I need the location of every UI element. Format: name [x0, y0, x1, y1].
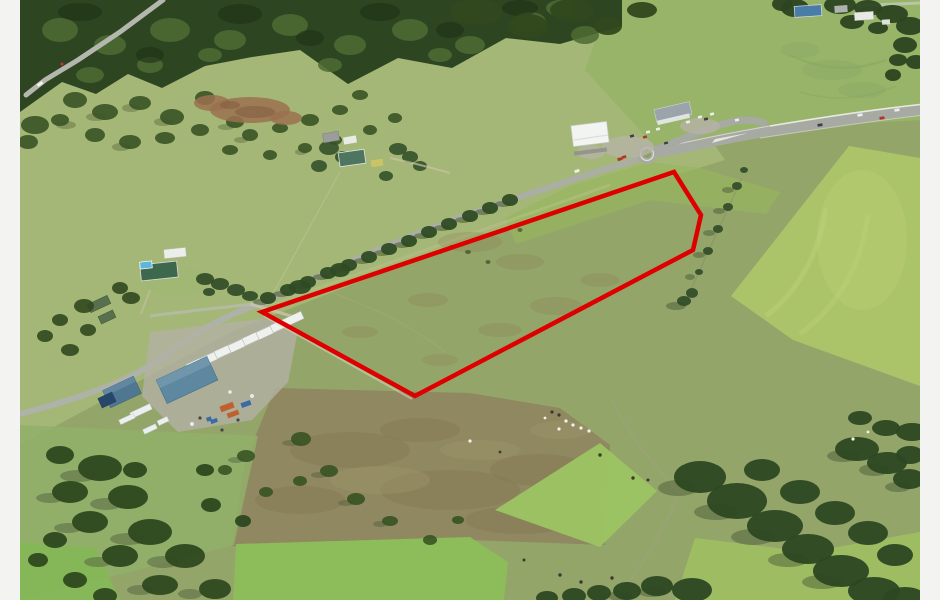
screenshot-frame	[0, 0, 940, 600]
vehicle-taillight	[61, 63, 64, 66]
house2-pool	[140, 261, 153, 269]
topright-house-blue-roof	[794, 5, 822, 18]
rest-area-shed-roof	[571, 121, 609, 146]
topright-shed-white-small	[882, 19, 890, 25]
aerial-photo	[20, 0, 920, 600]
topright-shed-gray	[834, 5, 847, 13]
crop-field-bottom	[233, 537, 508, 600]
topright-shed-white	[854, 11, 874, 20]
